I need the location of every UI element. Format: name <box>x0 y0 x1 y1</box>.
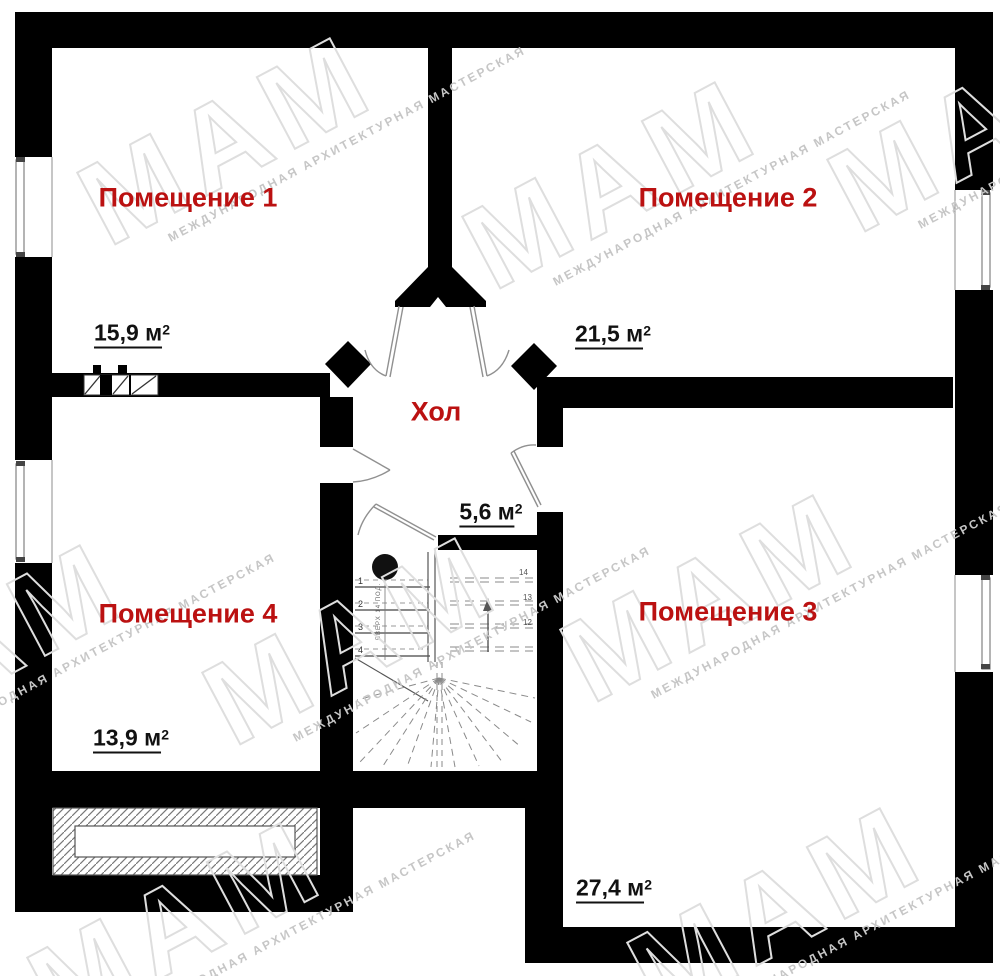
wall-arrowhead-center <box>395 267 486 307</box>
area-value: 5,6 <box>459 499 491 525</box>
step-number: 2 <box>358 599 363 609</box>
hall-area: 5,6 м2 <box>459 499 522 526</box>
wall-bottom-left <box>15 875 345 912</box>
stair-winder-fan <box>356 678 535 767</box>
area-unit: м <box>145 320 162 346</box>
stair-left-dashed <box>355 580 428 649</box>
wall-top <box>15 12 993 48</box>
wall-stair-top <box>438 535 540 550</box>
window-room2 <box>955 190 990 290</box>
door-room4 <box>353 449 390 482</box>
wall-right-3 <box>955 672 993 963</box>
room3-area: 27,4 м2 <box>576 875 652 902</box>
window-room3 <box>955 575 990 672</box>
floor-plan-drawing: 1 2 3 4 14 13 12 ВВЕРХ 14 ПОД. <box>0 0 1000 976</box>
stair-step-numbers: 1 2 3 4 14 13 12 <box>358 568 532 655</box>
balcony-hatch <box>53 808 317 875</box>
wall-right-1 <box>955 12 993 190</box>
wall-room3-left <box>525 771 563 963</box>
step-number: 4 <box>358 645 363 655</box>
step-number: 1 <box>358 576 363 586</box>
vent-stub-1 <box>93 365 101 373</box>
room4-area: 13,9 м2 <box>93 725 169 752</box>
floor-plan-canvas: 1 2 3 4 14 13 12 ВВЕРХ 14 ПОД. МАМ МЕЖДУ… <box>0 0 1000 976</box>
stair-newel-post <box>372 554 398 580</box>
wall-divider-2-3 <box>537 377 953 408</box>
step-number: 13 <box>523 593 532 602</box>
window-room4 <box>16 460 52 563</box>
wall-hall-left-upper <box>320 397 353 447</box>
wall-stair-right <box>537 512 563 771</box>
area-sup: 2 <box>643 323 651 339</box>
stair-left-flight <box>355 587 430 656</box>
area-unit: м <box>626 321 643 347</box>
stair-right-flight <box>450 578 533 651</box>
wall-left-1 <box>15 12 52 157</box>
wall-stair-left <box>320 483 353 912</box>
door-room1 <box>365 306 403 377</box>
room3-label: Помещение 3 <box>639 597 818 628</box>
room2-label: Помещение 2 <box>639 183 818 214</box>
step-number: 3 <box>358 622 363 632</box>
wall-left-2 <box>15 257 52 460</box>
area-value: 27,4 <box>576 875 621 901</box>
room4-label: Помещение 4 <box>99 599 278 630</box>
area-value: 13,9 <box>93 725 138 751</box>
vent-block <box>84 375 158 395</box>
wall-left-3 <box>15 563 52 912</box>
stair-direction-note: ВВЕРХ 14 ПОД. <box>376 583 382 640</box>
area-sup: 2 <box>162 322 170 338</box>
area-unit: м <box>144 725 161 751</box>
wall-divider-1-2 <box>428 12 452 267</box>
wall-right-2 <box>955 290 993 575</box>
windows <box>16 157 990 672</box>
vent-stub-2 <box>118 365 127 373</box>
room2-area: 21,5 м2 <box>575 321 651 348</box>
door-stairs <box>358 504 436 540</box>
area-value: 15,9 <box>94 320 139 346</box>
wall-mid-band <box>15 771 563 808</box>
step-number: 14 <box>519 568 528 577</box>
wall-hall-right-upper <box>537 398 563 447</box>
area-sup: 2 <box>161 727 169 743</box>
room1-label: Помещение 1 <box>99 183 278 214</box>
window-room1 <box>16 157 52 257</box>
staircase: 1 2 3 4 14 13 12 ВВЕРХ 14 ПОД. <box>355 552 535 768</box>
hall-label: Хол <box>411 397 462 428</box>
room1-area: 15,9 м2 <box>94 320 170 347</box>
wall-chevron-left <box>325 341 371 388</box>
door-room2 <box>470 306 509 377</box>
wall-bottom-right <box>525 927 993 963</box>
step-number: 12 <box>523 618 532 627</box>
area-sup: 2 <box>515 501 523 517</box>
area-unit: м <box>498 499 515 525</box>
area-unit: м <box>627 875 644 901</box>
area-sup: 2 <box>644 877 652 893</box>
area-value: 21,5 <box>575 321 620 347</box>
